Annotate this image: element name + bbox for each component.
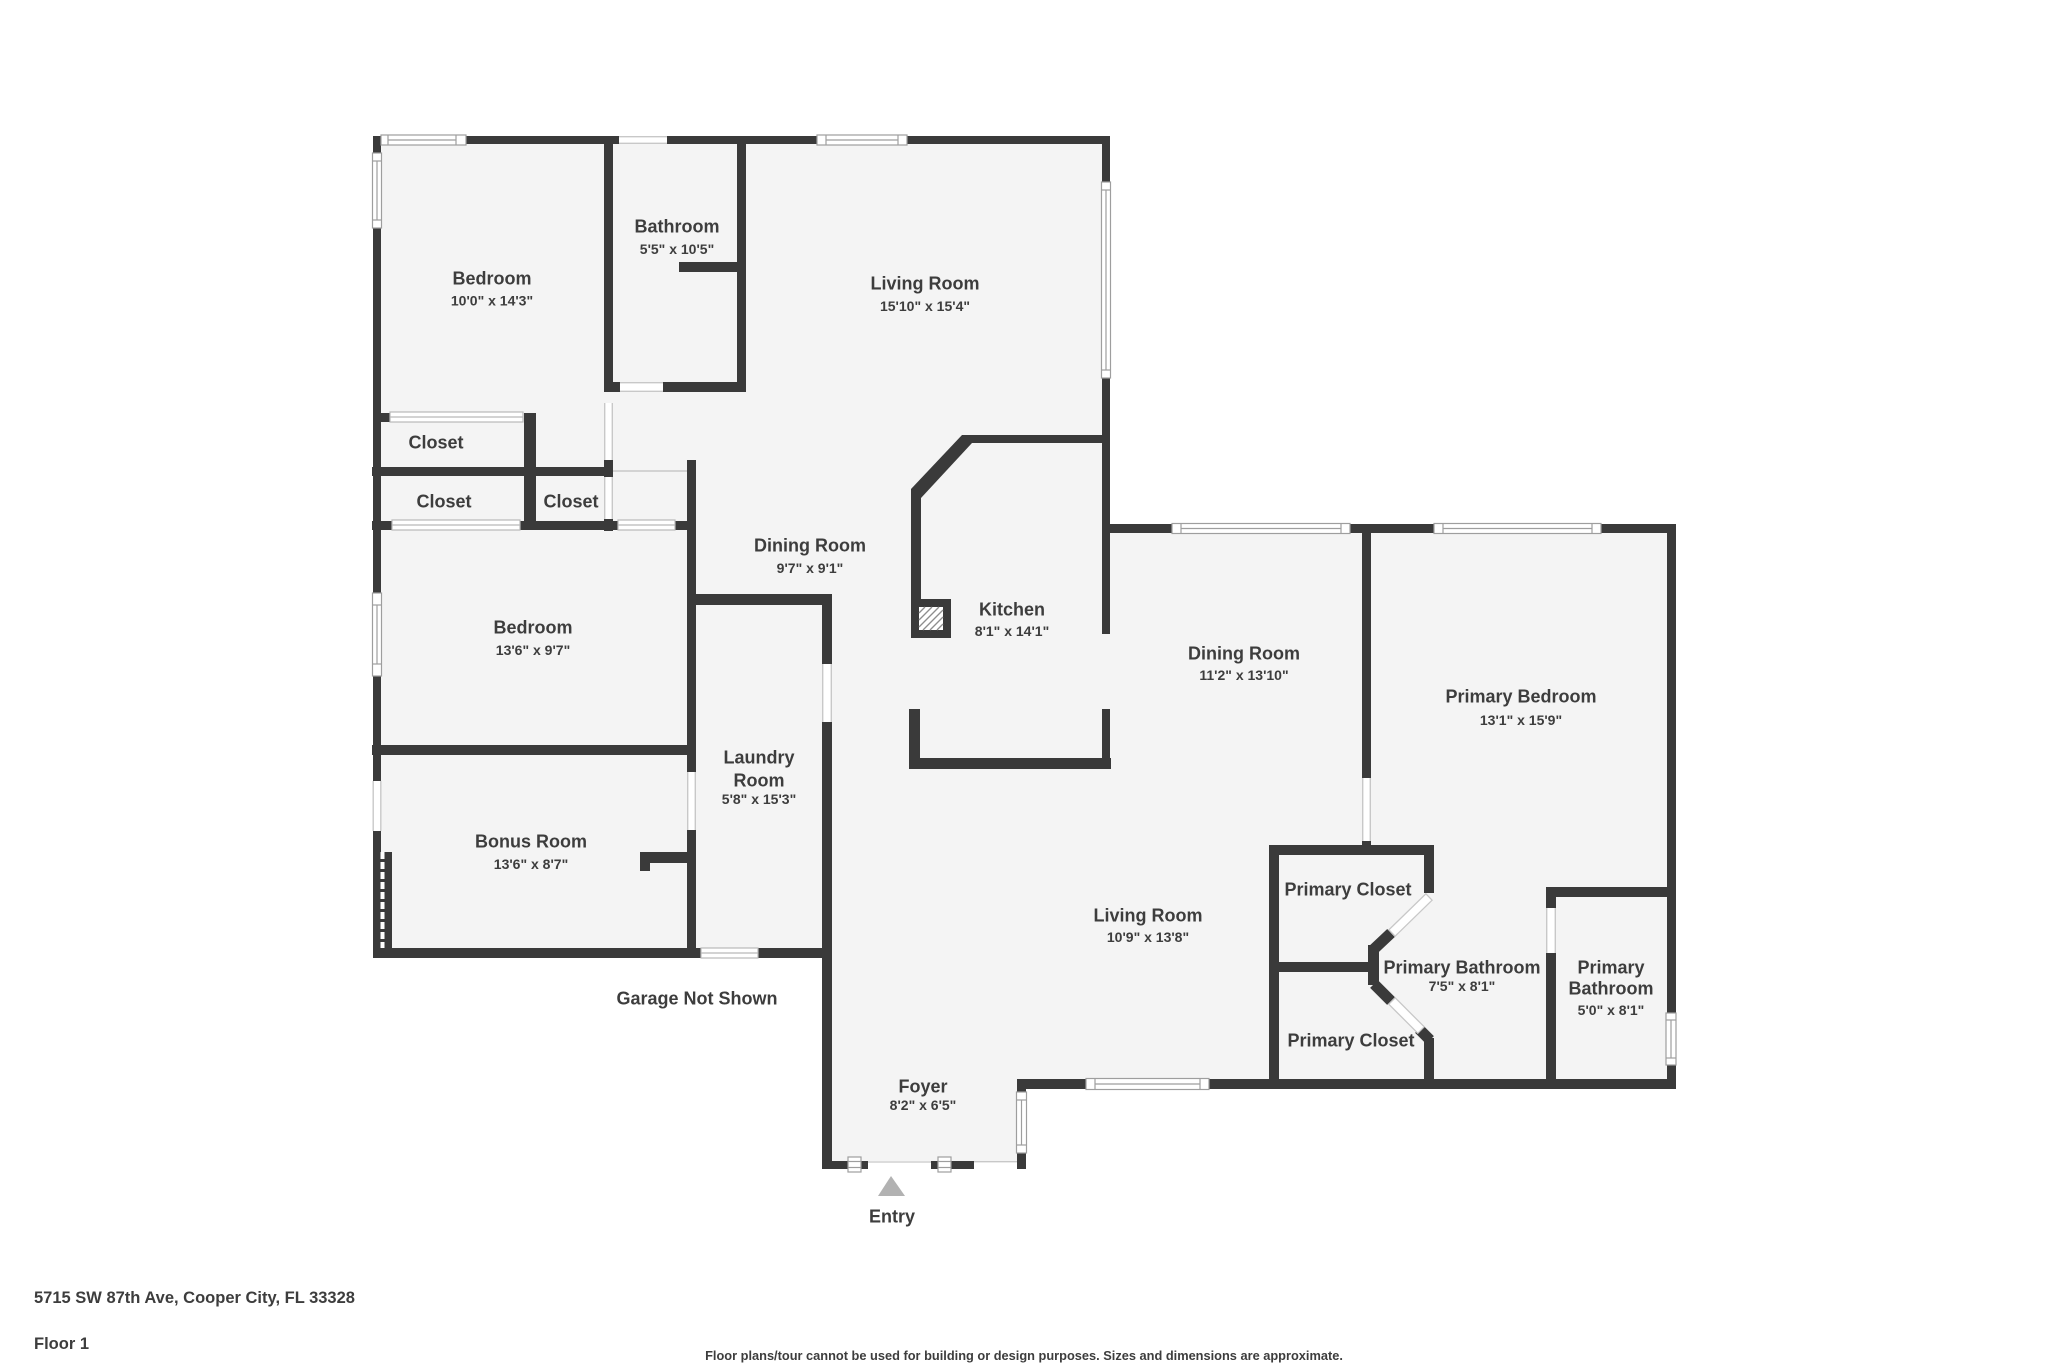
svg-text:Garage Not Shown: Garage Not Shown [616, 989, 777, 1009]
svg-text:8'2" x 6'5": 8'2" x 6'5" [890, 1097, 957, 1113]
svg-text:13'1" x 15'9": 13'1" x 15'9" [1480, 712, 1562, 728]
svg-text:Living Room: Living Room [871, 274, 980, 294]
svg-text:Dining Room: Dining Room [1188, 644, 1300, 664]
svg-text:Foyer: Foyer [898, 1077, 947, 1097]
svg-text:15'10" x 15'4": 15'10" x 15'4" [880, 298, 970, 314]
svg-text:Bathroom: Bathroom [1569, 979, 1654, 999]
svg-text:13'6" x 9'7": 13'6" x 9'7" [496, 642, 570, 658]
svg-text:5'8" x 15'3": 5'8" x 15'3" [722, 791, 796, 807]
svg-text:7'5" x 8'1": 7'5" x 8'1" [1429, 978, 1496, 994]
svg-text:Primary: Primary [1577, 958, 1644, 978]
svg-text:Closet: Closet [543, 492, 598, 512]
svg-text:Primary Bedroom: Primary Bedroom [1445, 687, 1596, 707]
svg-text:10'9" x 13'8": 10'9" x 13'8" [1107, 929, 1189, 945]
svg-text:Bathroom: Bathroom [635, 217, 720, 237]
svg-text:Floor plans/tour cannot be use: Floor plans/tour cannot be used for buil… [705, 1348, 1343, 1363]
svg-text:Primary Bathroom: Primary Bathroom [1383, 958, 1540, 978]
svg-text:Room: Room [734, 771, 785, 791]
svg-text:11'2" x 13'10": 11'2" x 13'10" [1199, 667, 1288, 683]
svg-text:Entry: Entry [869, 1207, 915, 1227]
svg-text:8'1" x 14'1": 8'1" x 14'1" [975, 623, 1049, 639]
svg-text:Primary Closet: Primary Closet [1287, 1031, 1414, 1051]
svg-text:Primary Closet: Primary Closet [1284, 880, 1411, 900]
svg-text:Bedroom: Bedroom [493, 618, 572, 638]
svg-text:Floor 1: Floor 1 [34, 1335, 89, 1353]
svg-text:Dining Room: Dining Room [754, 536, 866, 556]
svg-text:5715 SW 87th Ave, Cooper City,: 5715 SW 87th Ave, Cooper City, FL 33328 [34, 1289, 355, 1307]
svg-text:Closet: Closet [416, 492, 471, 512]
svg-text:5'5" x 10'5": 5'5" x 10'5" [640, 241, 714, 257]
svg-text:Kitchen: Kitchen [979, 600, 1045, 620]
svg-text:5'0" x 8'1": 5'0" x 8'1" [1578, 1002, 1645, 1018]
svg-text:9'7" x 9'1": 9'7" x 9'1" [777, 560, 844, 576]
svg-text:Living Room: Living Room [1094, 906, 1203, 926]
svg-text:Closet: Closet [408, 433, 463, 453]
svg-text:13'6" x 8'7": 13'6" x 8'7" [494, 856, 568, 872]
svg-text:10'0" x 14'3": 10'0" x 14'3" [451, 293, 533, 309]
svg-text:Bedroom: Bedroom [452, 269, 531, 289]
svg-text:Bonus Room: Bonus Room [475, 832, 587, 852]
svg-text:Laundry: Laundry [723, 748, 794, 768]
